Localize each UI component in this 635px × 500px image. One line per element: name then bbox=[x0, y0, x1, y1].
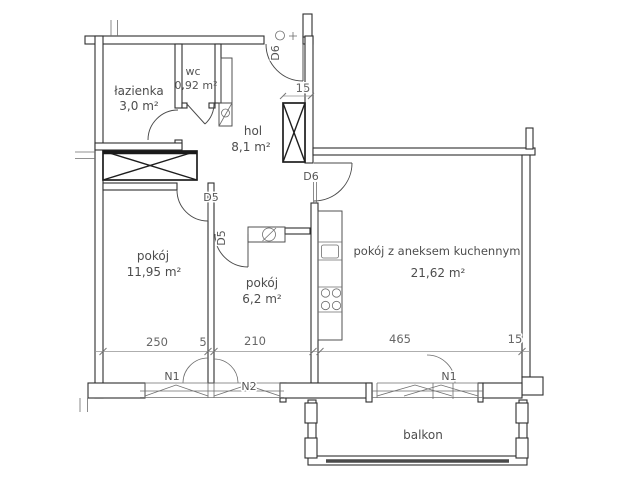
door-label-d5-room2: D5 bbox=[215, 230, 228, 245]
kitchen-annex bbox=[318, 211, 342, 340]
hatched-shaft bbox=[283, 103, 305, 162]
wall-wc-right bbox=[215, 44, 221, 103]
room-name-pokoj-aneks: pokój z aneksem kuchennym bbox=[353, 244, 520, 258]
room-area-pokoj-1: 11,95 m² bbox=[127, 265, 182, 279]
wall-stub-above-entry bbox=[303, 14, 312, 37]
entry-marker bbox=[276, 31, 285, 40]
wall-bottom-right bbox=[483, 383, 522, 398]
balcony-post bbox=[305, 403, 317, 423]
room-name-pokoj-1: pokój bbox=[137, 249, 169, 263]
door-label-d6-livingroom: D6 bbox=[303, 170, 318, 183]
balcony-post bbox=[516, 403, 528, 423]
window-n1-symbol bbox=[145, 385, 208, 396]
wall-hall-room1 bbox=[103, 183, 177, 190]
room-name-lazienka: łazienka bbox=[114, 84, 163, 98]
dim-15-entry: 15 bbox=[296, 81, 311, 95]
wall-bottom-middle bbox=[280, 383, 372, 398]
door-label-d5-room1: D5 bbox=[203, 191, 218, 204]
room-name-wc: wc bbox=[185, 65, 200, 78]
room-name-hol: hol bbox=[244, 124, 262, 138]
window-label-n1-right: N1 bbox=[441, 370, 456, 383]
dim-465: 465 bbox=[389, 332, 411, 346]
door-bathroom bbox=[148, 110, 178, 140]
balcony-post bbox=[516, 438, 528, 458]
wall-bathroom-right bbox=[175, 44, 182, 108]
wall-bottom-left-pier bbox=[88, 383, 145, 398]
door-label-d6-entry: D6 bbox=[269, 45, 282, 60]
dim-250: 250 bbox=[146, 335, 168, 349]
window-label-n2: N2 bbox=[241, 380, 256, 393]
room-area-wc: 0,92 m² bbox=[174, 79, 217, 92]
wall-hall-room2 bbox=[285, 228, 310, 234]
wall-hall-right-lower bbox=[311, 203, 318, 383]
wall-bottom-right-pier bbox=[522, 377, 543, 395]
wall-top-left bbox=[85, 36, 264, 44]
wc-duct bbox=[219, 58, 232, 126]
kitchen-counter bbox=[318, 211, 342, 340]
room-name-pokoj-2: pokój bbox=[246, 276, 278, 290]
window-n1-right-symbol bbox=[377, 385, 452, 396]
dim-5: 5 bbox=[199, 335, 206, 349]
room-area-lazienka: 3,0 m² bbox=[119, 99, 159, 113]
wall-stub-top-right bbox=[526, 128, 533, 149]
wardrobe-room2 bbox=[248, 227, 285, 242]
room-name-balkon: balkon bbox=[403, 428, 443, 442]
wall-bathroom-bottom bbox=[95, 143, 182, 150]
balcony-post bbox=[305, 438, 317, 458]
wall-bottom-step-2 bbox=[366, 383, 372, 402]
room-area-hol: 8,1 m² bbox=[231, 140, 271, 154]
kitchen-stove bbox=[321, 289, 340, 310]
balcony-door-symbol bbox=[404, 385, 478, 396]
hatched-wardrobe bbox=[103, 151, 197, 180]
wall-bottom-step-3 bbox=[478, 383, 483, 402]
dim-15-right: 15 bbox=[508, 332, 523, 346]
floor-plan-page: łazienka 3,0 m² wc 0,92 m² hol 8,1 m² po… bbox=[0, 0, 635, 500]
dim-210: 210 bbox=[244, 334, 266, 348]
wall-right bbox=[522, 155, 530, 377]
door-livingroom-d6 bbox=[314, 163, 353, 203]
room-area-pokoj-aneks: 21,62 m² bbox=[411, 266, 466, 280]
window-label-n1: N1 bbox=[164, 370, 179, 383]
floor-plan-drawing: łazienka 3,0 m² wc 0,92 m² hol 8,1 m² po… bbox=[0, 0, 635, 500]
wall-livingroom-top bbox=[313, 148, 535, 155]
wall-hall-right-upper bbox=[305, 36, 313, 163]
kitchen-sink bbox=[322, 245, 339, 258]
wall-left bbox=[95, 36, 103, 398]
room-area-pokoj-2: 6,2 m² bbox=[242, 292, 282, 306]
